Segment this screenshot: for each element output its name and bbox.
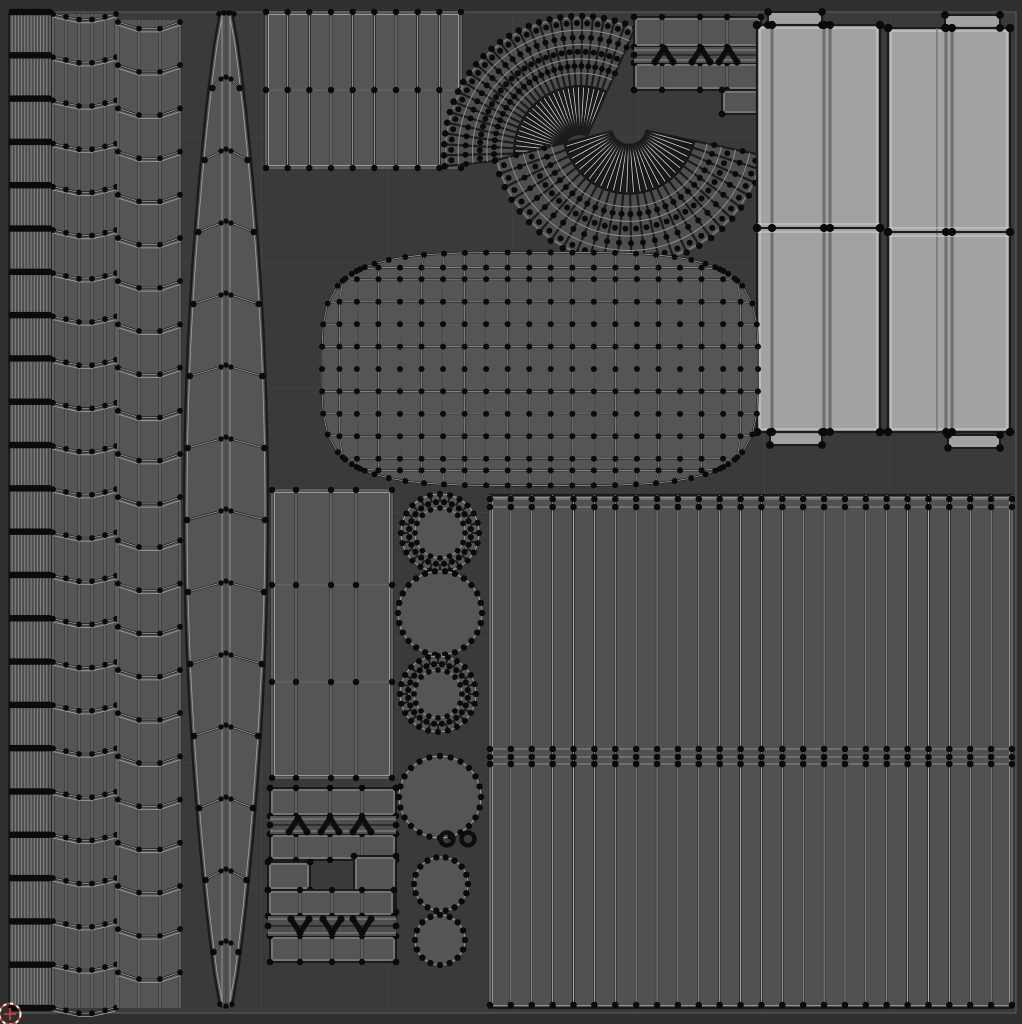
uv-island-block-top[interactable] — [263, 9, 464, 171]
uv-island-stack-mid[interactable] — [269, 487, 395, 781]
uv-island-strip-chevron-b[interactable] — [115, 19, 183, 1008]
uv-island-panel-group-left[interactable] — [753, 8, 885, 449]
uv-island-panel-group-right[interactable] — [884, 11, 1015, 452]
uv-island-block-bottom-right[interactable] — [487, 495, 1016, 1008]
uv-editor-canvas[interactable] — [0, 0, 1022, 1024]
uv-island-grid-shell[interactable] — [319, 250, 761, 489]
uv-island-strip-dense[interactable] — [9, 9, 53, 1011]
uv-island-strip-chevron-a[interactable] — [50, 11, 119, 1016]
uv-editor-viewport[interactable] — [0, 0, 1022, 1024]
